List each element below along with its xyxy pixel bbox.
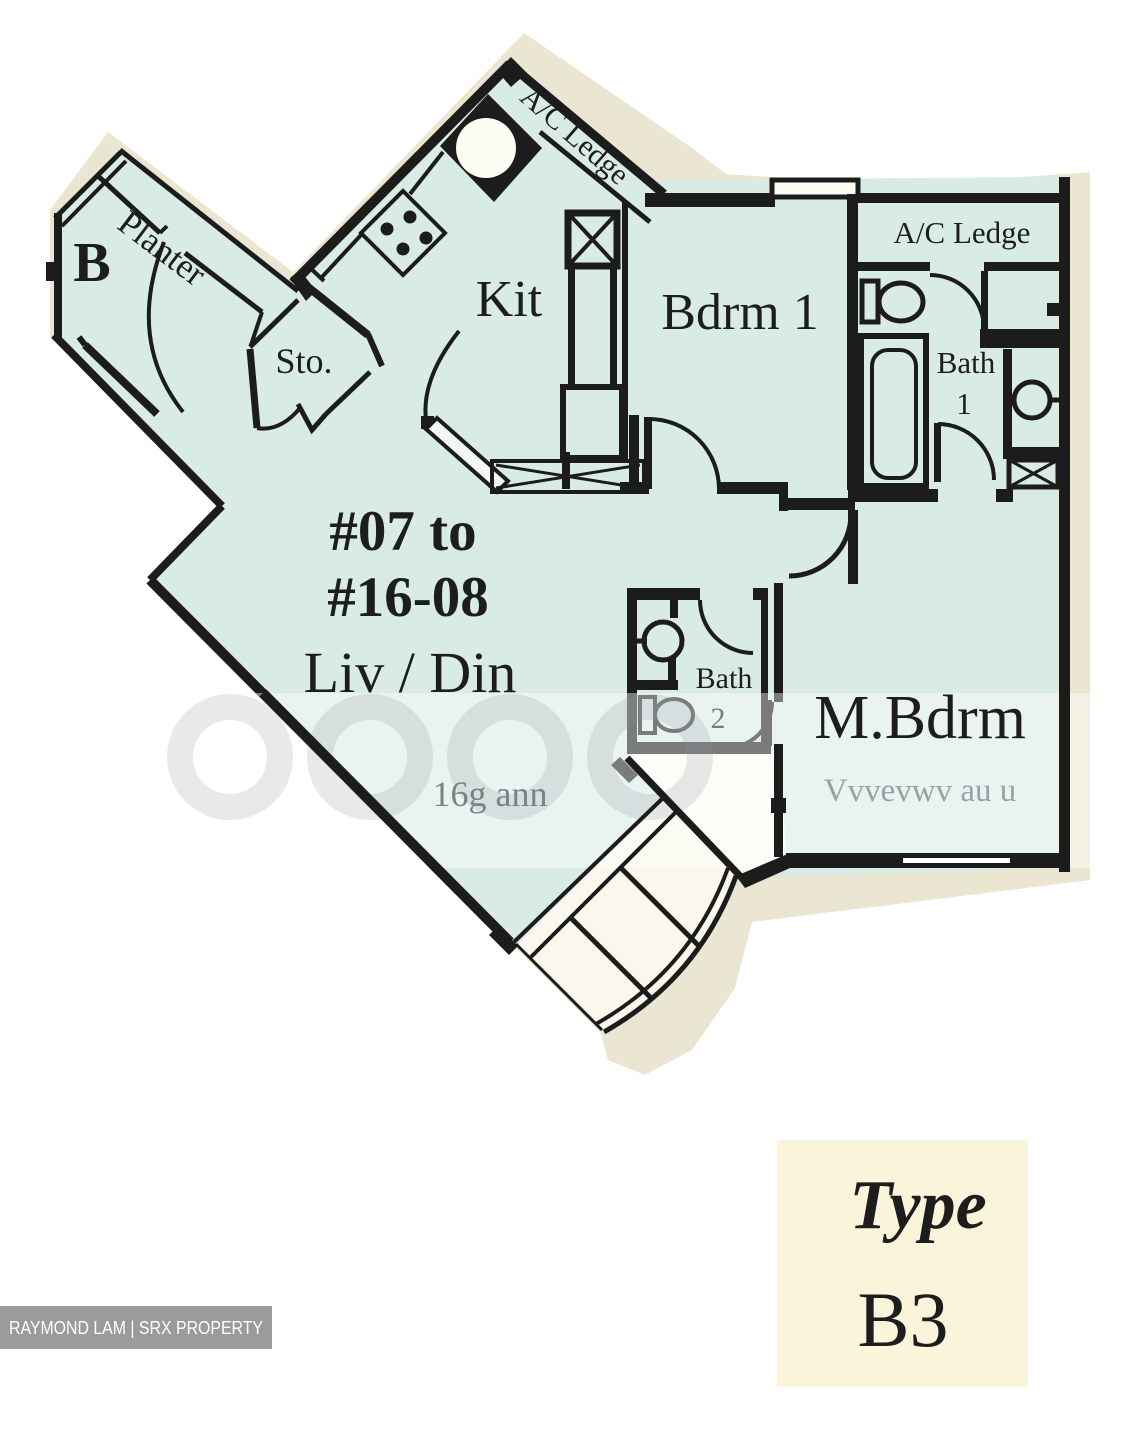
svg-text:M.Bdrm: M.Bdrm (814, 684, 1026, 752)
svg-text:Liv / Din: Liv / Din (304, 640, 517, 705)
svg-text:1: 1 (956, 386, 972, 421)
svg-text:Vvvevwv au u: Vvvevwv au u (824, 773, 1016, 809)
svg-text:Kit: Kit (476, 271, 543, 328)
svg-text:Bath: Bath (937, 345, 996, 380)
svg-text:A/C Ledge: A/C Ledge (894, 215, 1031, 250)
svg-text:Type: Type (849, 1167, 986, 1244)
svg-text:16g ann: 16g ann (433, 774, 548, 814)
svg-text:RAYMOND LAM | SRX PROPERTY: RAYMOND LAM | SRX PROPERTY (9, 1318, 263, 1338)
svg-text:#16-08: #16-08 (327, 566, 488, 629)
svg-text:B3: B3 (857, 1276, 948, 1363)
svg-text:Bath: Bath (696, 662, 753, 695)
svg-text:#07 to: #07 to (329, 500, 476, 563)
svg-text:Bdrm 1: Bdrm 1 (661, 284, 818, 341)
svg-text:B: B (73, 232, 110, 294)
svg-text:Sto.: Sto. (275, 341, 332, 381)
